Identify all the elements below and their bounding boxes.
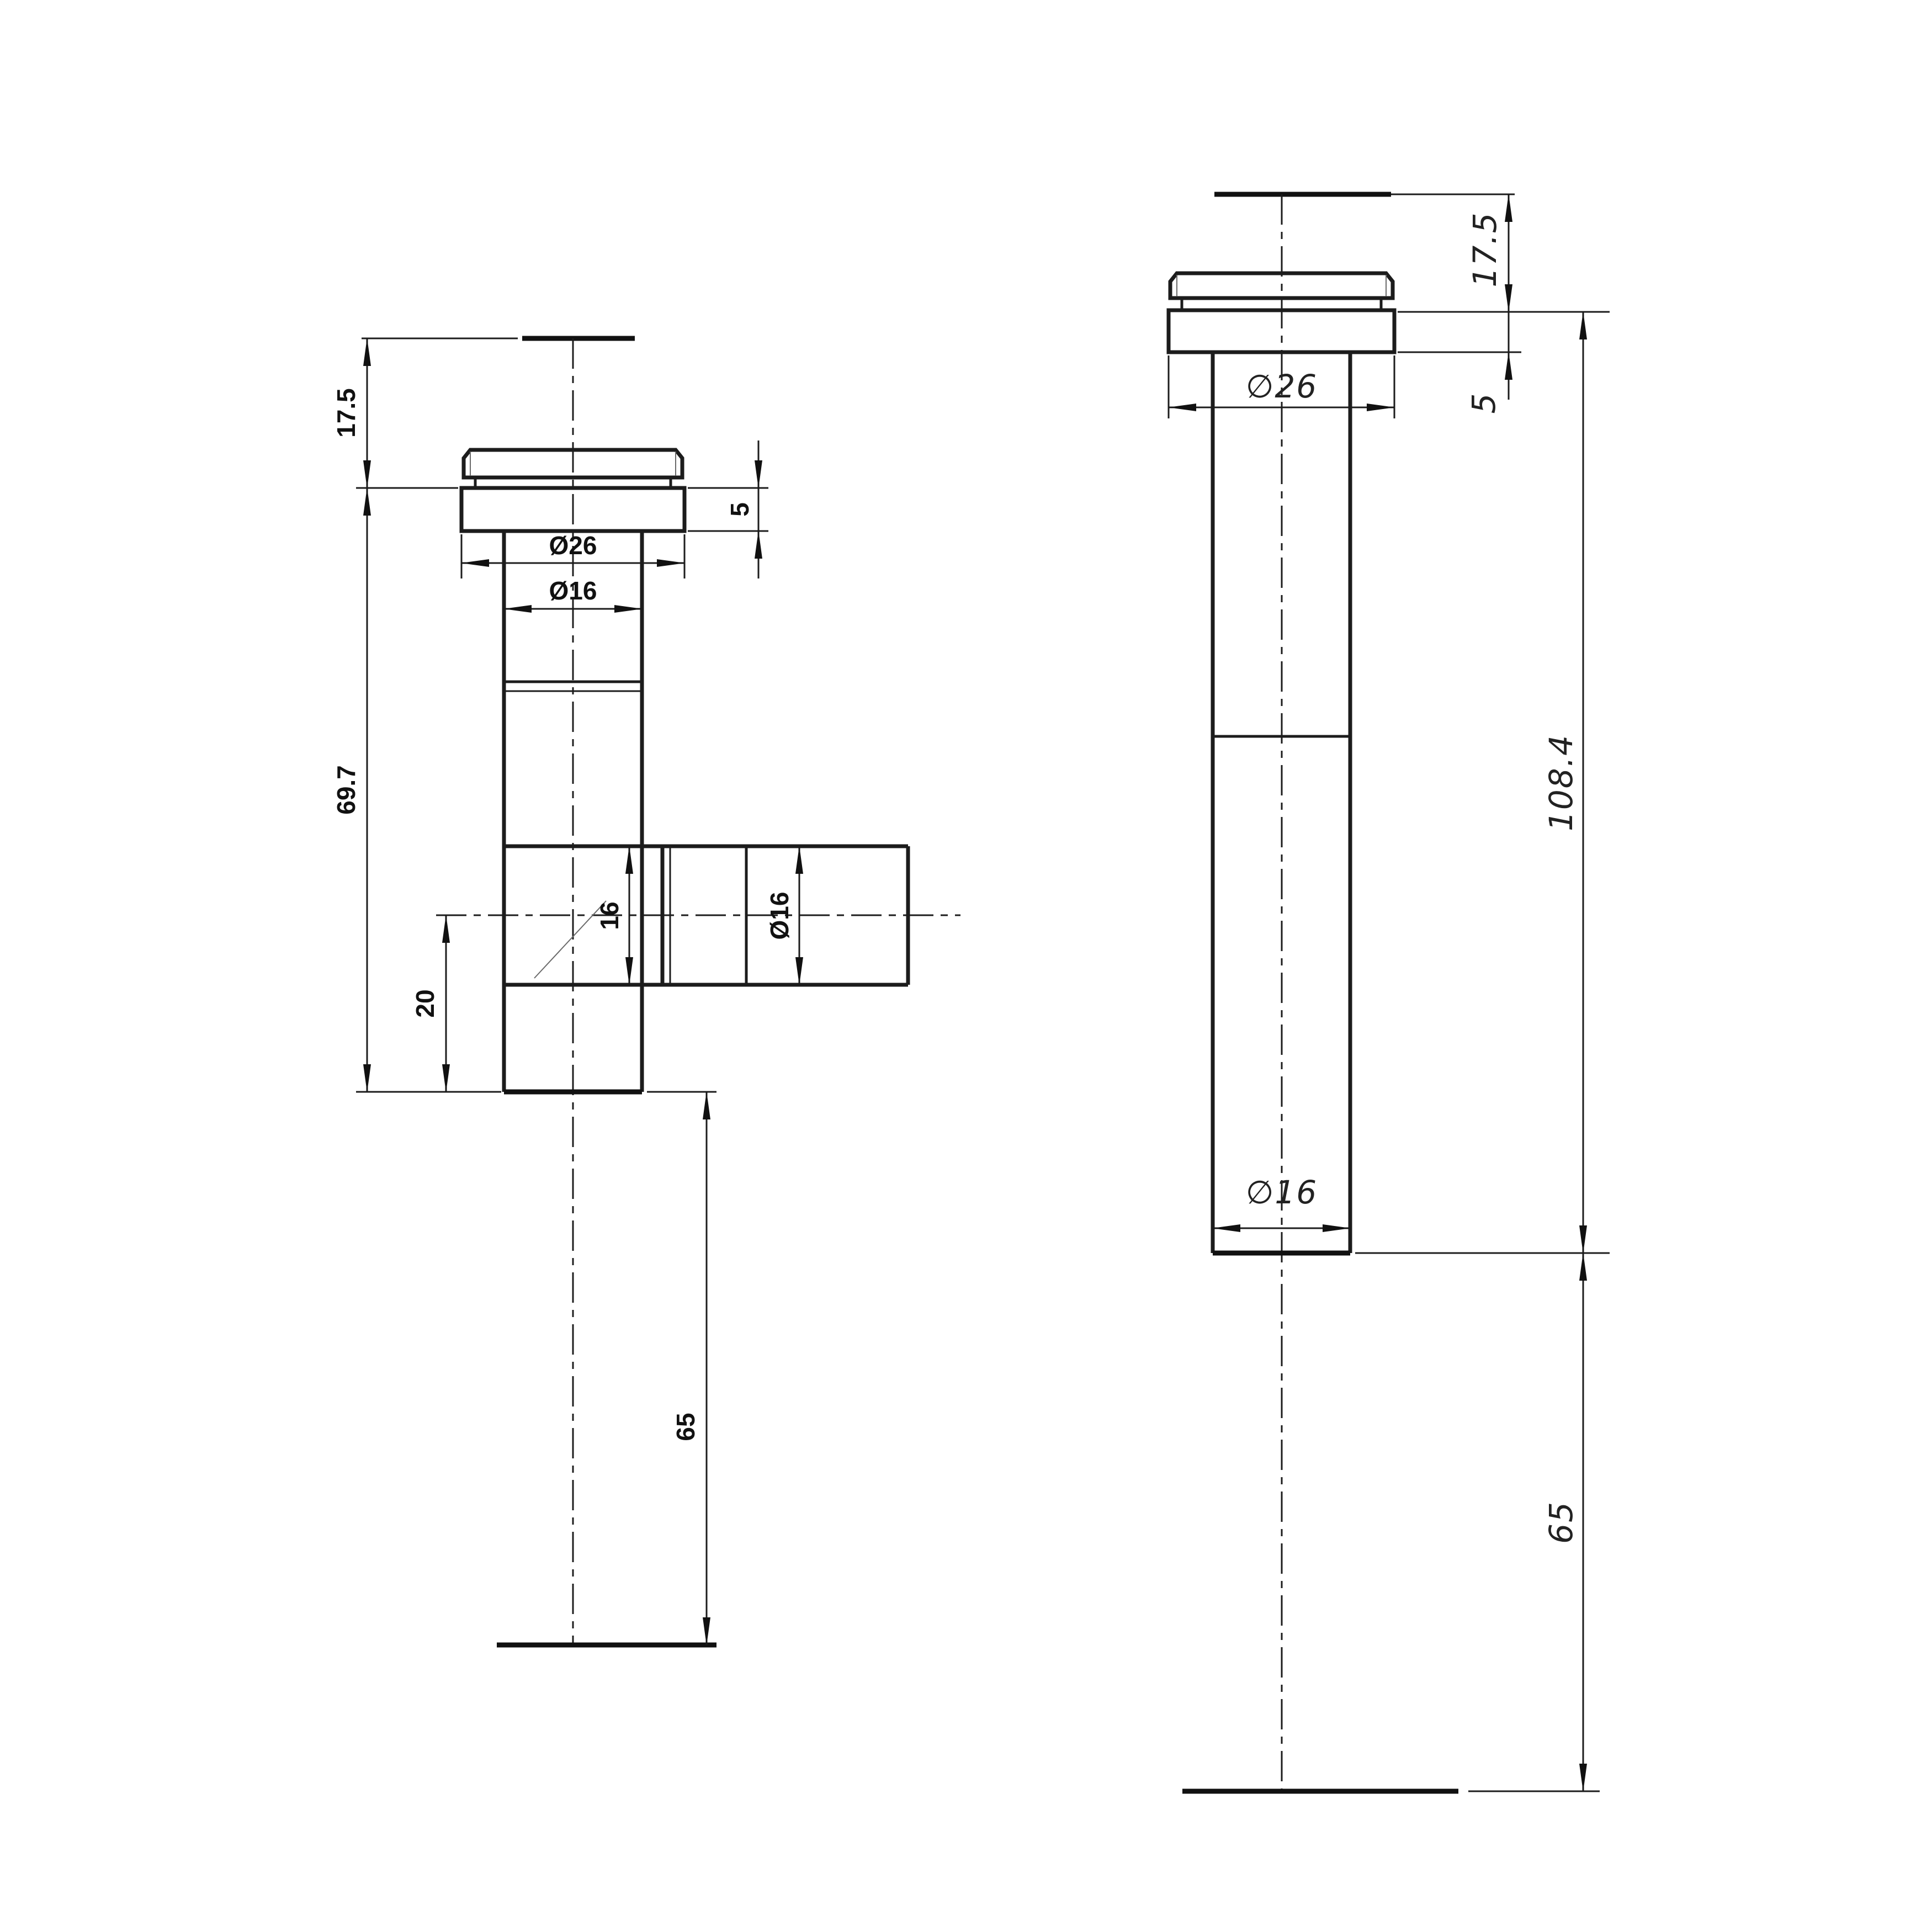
dim-label-17-5: 17.5 <box>1466 211 1504 287</box>
dim-branch-offset: 20 <box>411 915 446 1092</box>
dim-label-69-7: 69.7 <box>332 765 360 815</box>
dim-tail-length: 65 <box>647 1092 716 1645</box>
dim-label-d26: ∅26 <box>1246 368 1318 405</box>
dim-tail-length: 65 <box>1542 1253 1583 1791</box>
drawing-canvas: 17.5 69.7 20 65 5 <box>0 0 1932 1932</box>
branch-pipe <box>436 846 960 985</box>
dim-label-5: 5 <box>1465 392 1503 414</box>
left-view: 17.5 69.7 20 65 5 <box>332 338 960 1645</box>
dim-label-branch-d16: Ø16 <box>765 892 794 940</box>
dim-label-17-5: 17.5 <box>332 388 360 438</box>
dim-label-16: 16 <box>595 901 624 930</box>
dim-branch-bore: 16 <box>595 846 629 985</box>
dim-cap-height: 17.5 <box>332 338 458 488</box>
right-view: 17.5 5 ∅26 108.4 ∅16 <box>1169 194 1610 1791</box>
dim-label-d16: ∅16 <box>1246 1174 1318 1211</box>
dim-flange-thickness: 5 <box>1398 312 1521 413</box>
dim-label-65: 65 <box>671 1413 700 1441</box>
dim-label-d16: Ø16 <box>549 576 597 605</box>
dim-label-20: 20 <box>411 989 439 1017</box>
technical-drawing: 17.5 69.7 20 65 5 <box>0 0 1932 1932</box>
dim-cap-height: 17.5 <box>1398 194 1610 312</box>
dim-branch-diameter: Ø16 <box>765 846 799 985</box>
dim-pipe-diameter: Ø16 <box>504 576 642 609</box>
dim-label-5: 5 <box>725 502 754 517</box>
dim-flange-thickness: 5 <box>688 440 768 578</box>
dim-body-length: 108.4 <box>1355 312 1610 1253</box>
dim-label-65: 65 <box>1542 1501 1580 1544</box>
dim-label-108-4: 108.4 <box>1542 734 1580 831</box>
dim-label-d26: Ø26 <box>549 531 597 560</box>
